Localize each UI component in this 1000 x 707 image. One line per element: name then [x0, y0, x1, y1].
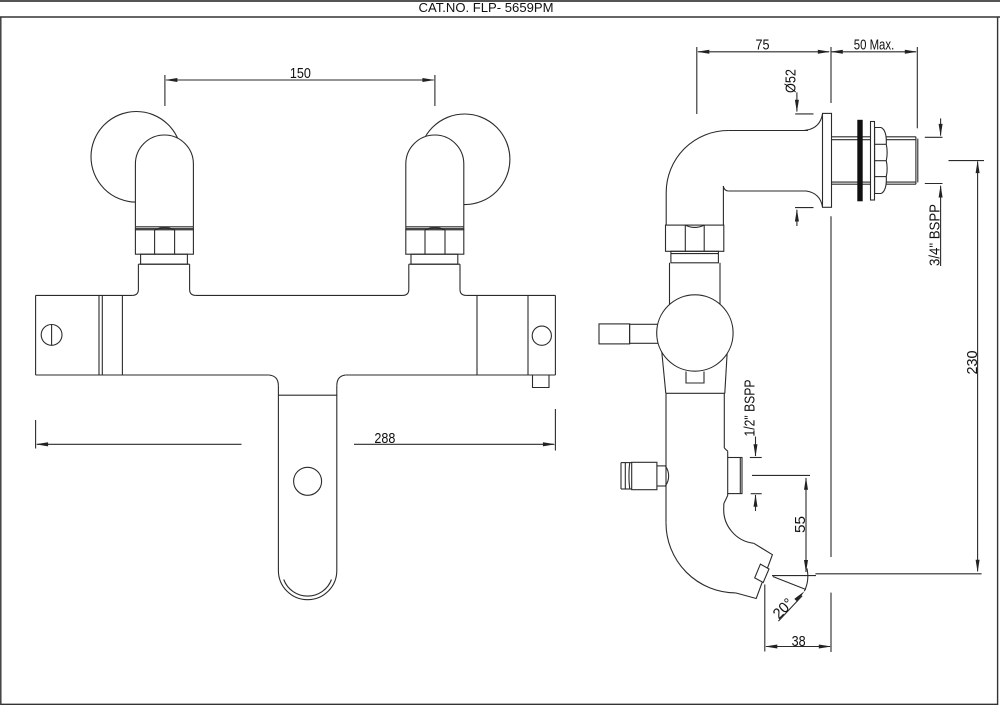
- svg-text:50 Max.: 50 Max.: [854, 37, 895, 54]
- svg-text:Ø52: Ø52: [782, 69, 799, 93]
- svg-text:20°: 20°: [770, 595, 798, 623]
- svg-text:38: 38: [792, 633, 806, 650]
- svg-text:CAT.NO. FLP- 5659PM: CAT.NO. FLP- 5659PM: [419, 0, 554, 15]
- svg-text:150: 150: [290, 65, 311, 82]
- svg-text:55: 55: [792, 516, 809, 533]
- svg-text:3/4" BSPP: 3/4" BSPP: [926, 204, 943, 266]
- svg-text:75: 75: [756, 37, 770, 54]
- svg-text:1/2" BSPP: 1/2" BSPP: [742, 380, 759, 437]
- svg-text:230: 230: [964, 351, 981, 375]
- svg-text:288: 288: [374, 430, 395, 447]
